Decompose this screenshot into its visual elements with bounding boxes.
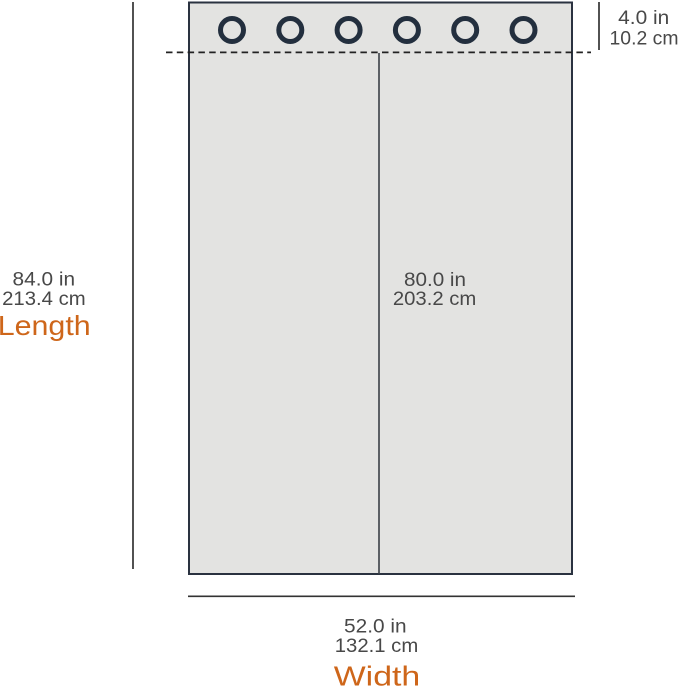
- svg-text:203.2 cm: 203.2 cm: [393, 289, 477, 310]
- svg-text:Width: Width: [334, 660, 421, 689]
- svg-text:80.0 in: 80.0 in: [404, 270, 466, 291]
- svg-text:Length: Length: [0, 310, 91, 341]
- svg-text:132.1 cm: 132.1 cm: [335, 636, 419, 657]
- svg-text:213.4 cm: 213.4 cm: [2, 289, 86, 310]
- svg-text:4.0 in: 4.0 in: [618, 8, 669, 29]
- svg-text:52.0 in: 52.0 in: [344, 616, 407, 637]
- svg-text:84.0 in: 84.0 in: [13, 270, 76, 291]
- svg-text:10.2 cm: 10.2 cm: [610, 29, 679, 50]
